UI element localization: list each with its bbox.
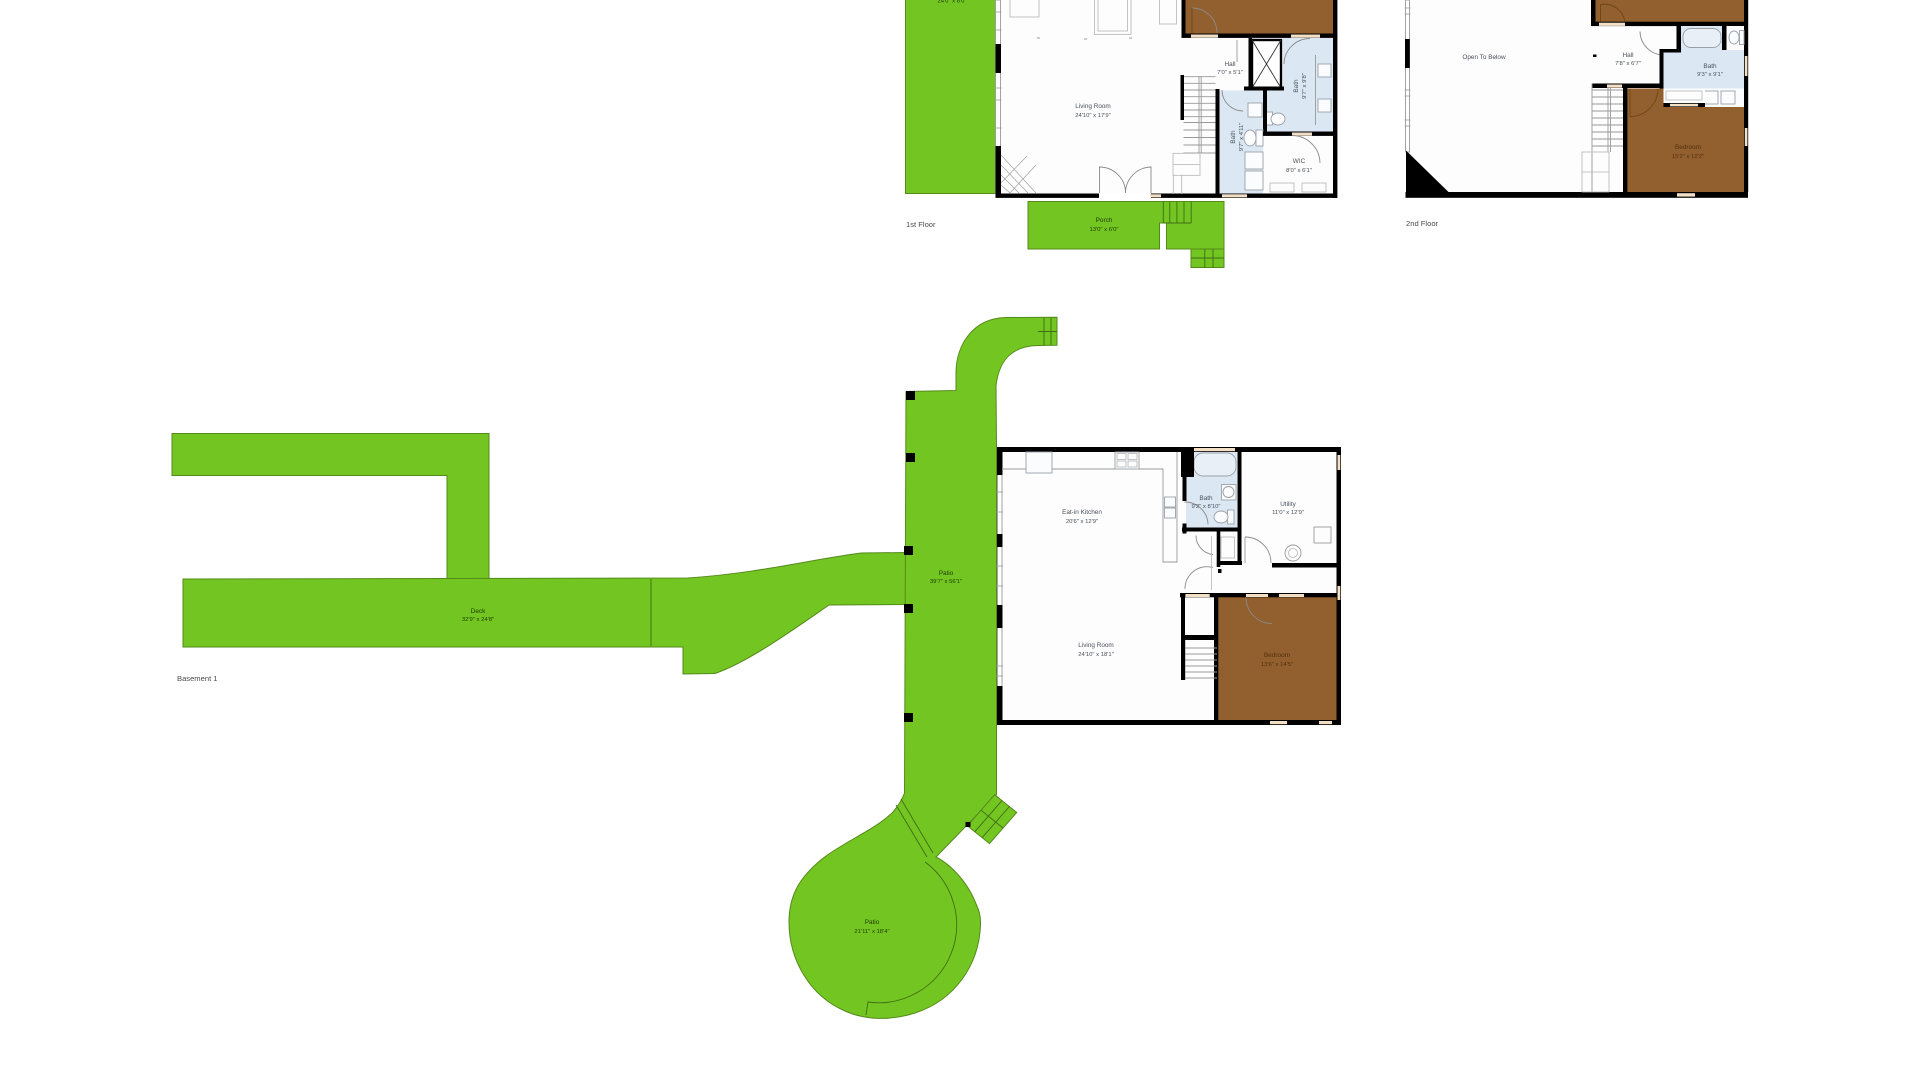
svg-text:9'7" x 9'8": 9'7" x 9'8" [1302, 73, 1308, 99]
svg-text:Patio: Patio [939, 570, 954, 577]
svg-text:Open To Below: Open To Below [1462, 54, 1506, 61]
svg-text:9'2" x 8'10": 9'2" x 8'10" [1191, 504, 1220, 510]
svg-text:Hall: Hall [1622, 52, 1633, 59]
svg-text:13'6" x 14'5": 13'6" x 14'5" [1261, 662, 1293, 668]
svg-text:Bedroom: Bedroom [1675, 144, 1701, 151]
svg-text:Bath: Bath [1293, 79, 1300, 93]
svg-text:9'7" x 4'11": 9'7" x 4'11" [1239, 123, 1245, 152]
svg-text:24'10" x 17'9": 24'10" x 17'9" [1075, 113, 1111, 119]
svg-text:Hall: Hall [1224, 61, 1235, 68]
svg-text:WIC: WIC [1293, 158, 1306, 165]
svg-text:Eat-in Kitchen: Eat-in Kitchen [1062, 509, 1102, 516]
svg-text:Bedroom: Bedroom [1264, 652, 1290, 659]
svg-text:9'3" x 9'1": 9'3" x 9'1" [1697, 72, 1723, 78]
svg-text:1st Floor: 1st Floor [906, 220, 936, 229]
svg-text:2nd Floor: 2nd Floor [1406, 219, 1439, 228]
svg-text:21'11" x 18'4": 21'11" x 18'4" [854, 929, 889, 935]
svg-text:11'0" x 12'9": 11'0" x 12'9" [1272, 510, 1304, 516]
svg-text:8'0" x 6'1": 8'0" x 6'1" [1286, 168, 1312, 174]
svg-text:Bath: Bath [1703, 63, 1717, 70]
svg-text:Patio: Patio [865, 919, 880, 926]
svg-text:Porch: Porch [1096, 217, 1113, 224]
svg-text:Living Room: Living Room [1078, 642, 1114, 649]
svg-text:Living Room: Living Room [1075, 103, 1111, 110]
svg-text:24'10" x 18'1": 24'10" x 18'1" [1078, 652, 1114, 658]
svg-text:Basement 1: Basement 1 [177, 674, 218, 683]
svg-text:Utility: Utility [1280, 501, 1296, 508]
svg-text:24'0" x 8'0": 24'0" x 8'0" [937, 0, 966, 5]
svg-text:13'0" x 6'0": 13'0" x 6'0" [1089, 227, 1118, 233]
svg-text:Deck: Deck [471, 608, 486, 615]
svg-text:32'9" x 24'8": 32'9" x 24'8" [462, 617, 494, 623]
svg-text:Bath: Bath [1230, 130, 1237, 144]
svg-text:7'0" x 5'1": 7'0" x 5'1" [1217, 70, 1243, 76]
svg-text:Bath: Bath [1199, 495, 1213, 502]
svg-text:7'8" x 6'7": 7'8" x 6'7" [1615, 61, 1641, 67]
svg-text:39'7" x 56'1": 39'7" x 56'1" [930, 579, 962, 585]
svg-text:15'2" x 12'2": 15'2" x 12'2" [1672, 154, 1704, 160]
svg-text:20'6" x 12'9": 20'6" x 12'9" [1066, 519, 1098, 525]
